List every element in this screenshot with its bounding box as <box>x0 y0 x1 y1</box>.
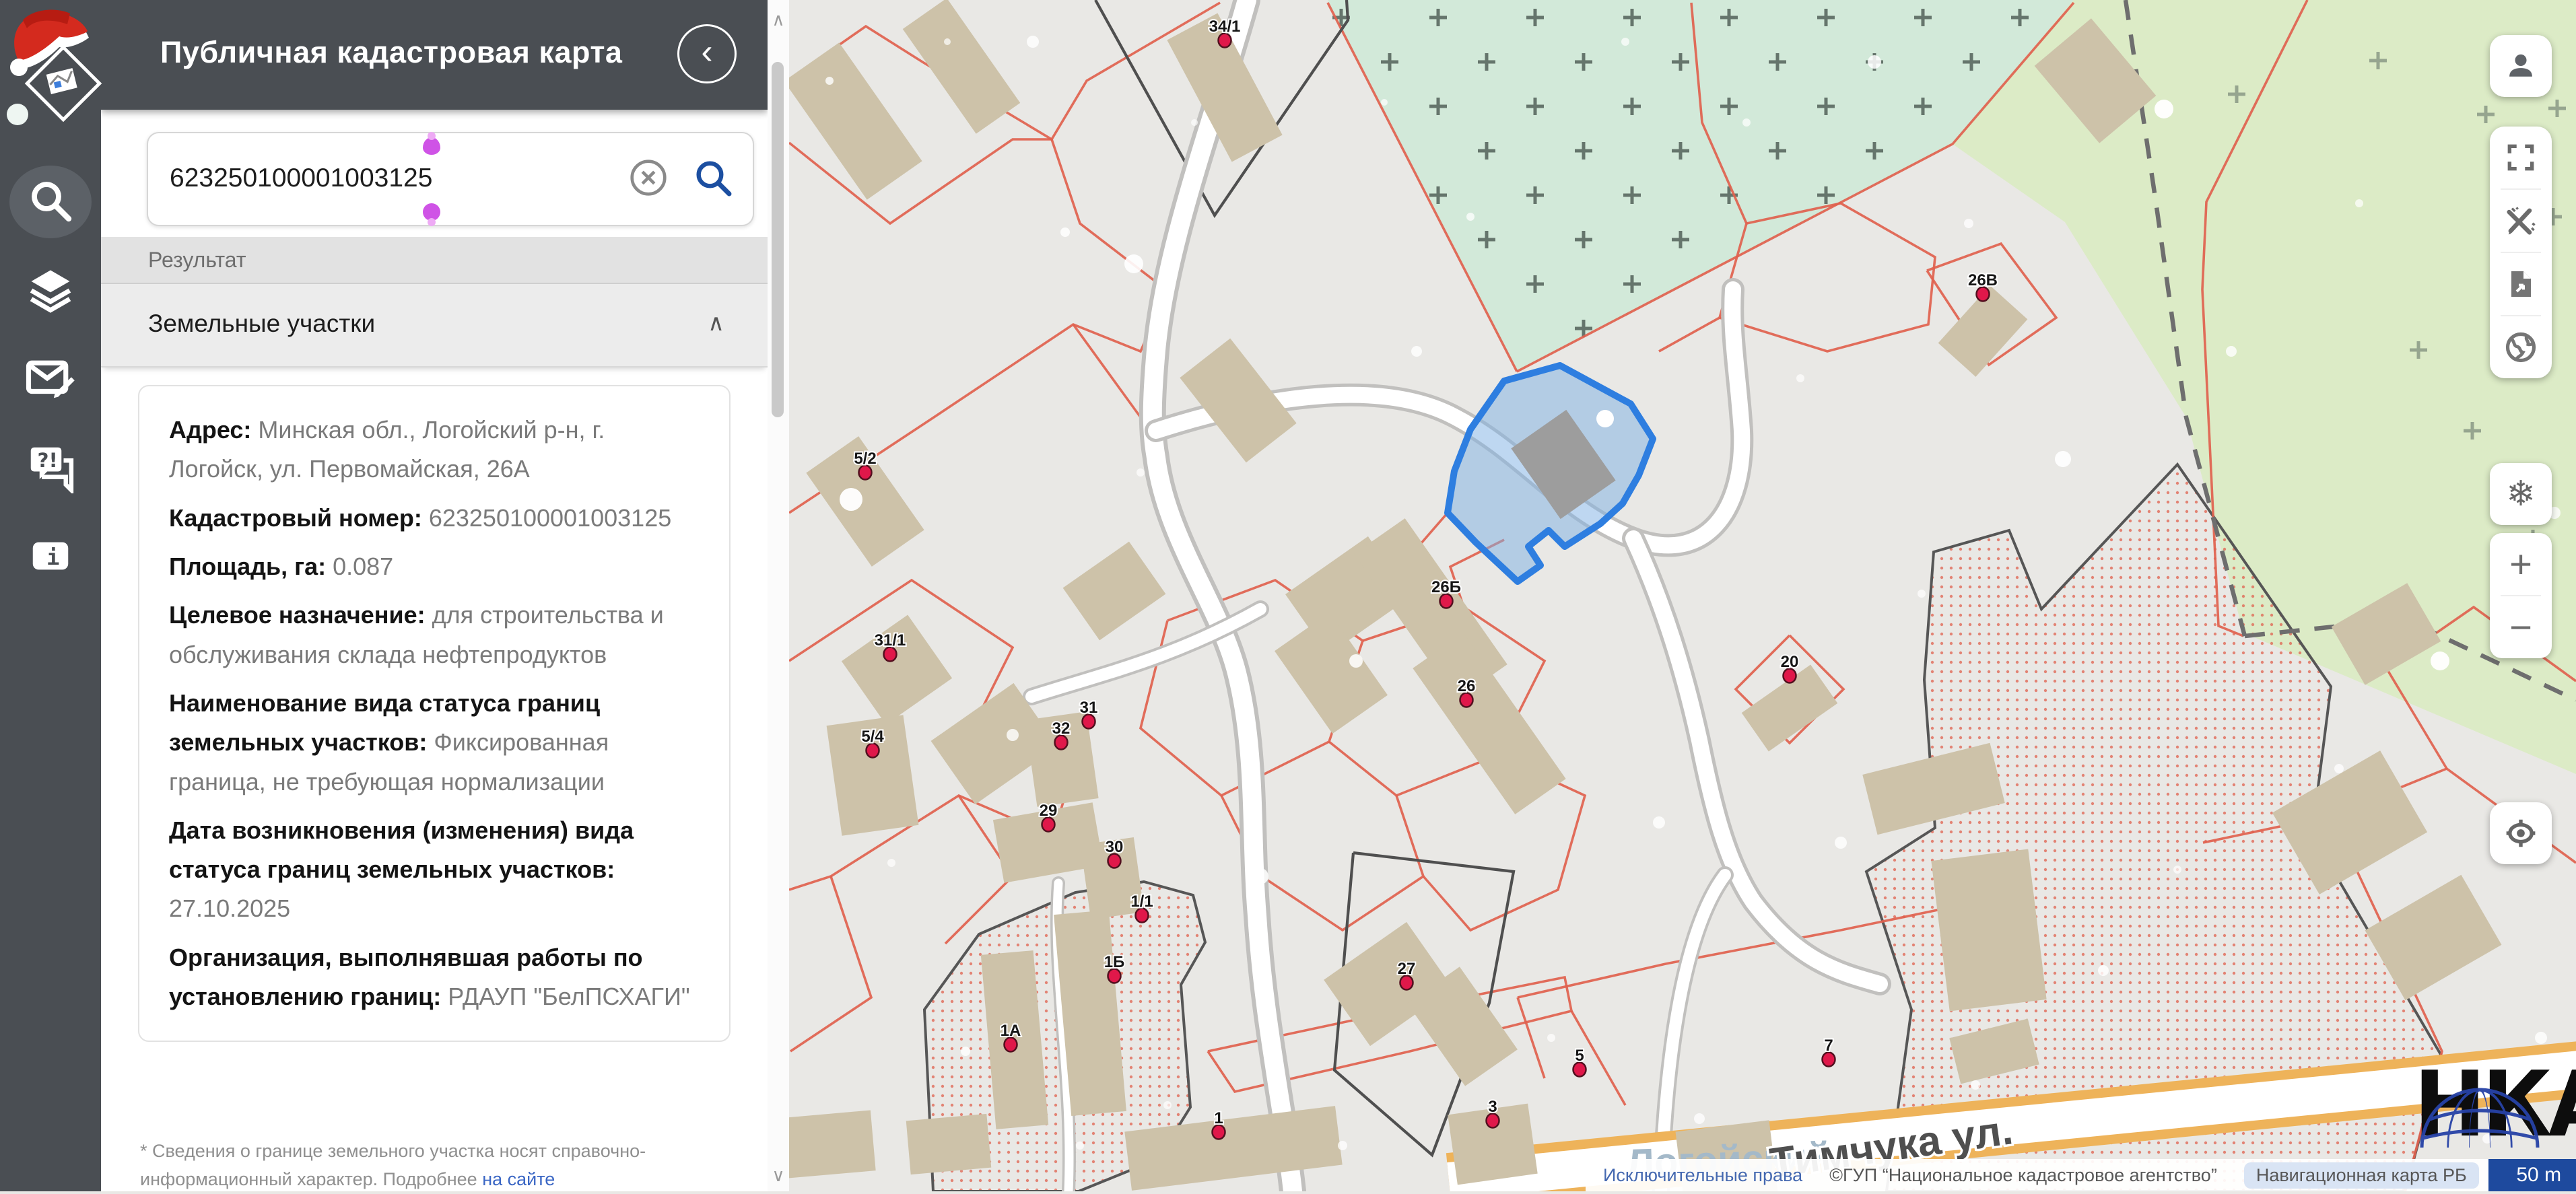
snow-dot <box>1466 213 1475 221</box>
clear-icon <box>628 157 669 202</box>
chevron-left-icon: ‹ <box>701 32 712 72</box>
snow-dot <box>2155 100 2173 118</box>
address-marker-label: 31 <box>1080 699 1098 717</box>
address-marker[interactable]: 32 <box>1052 719 1071 750</box>
snow-dot <box>2355 199 2363 207</box>
address-marker[interactable]: 30 <box>1106 838 1124 868</box>
search-field <box>147 132 754 226</box>
result-header: Результат ✕ <box>101 237 768 284</box>
text-selection-handle-top[interactable] <box>423 137 440 155</box>
address-marker[interactable]: 1 <box>1213 1109 1225 1139</box>
measure-button[interactable] <box>2490 190 2552 252</box>
address-marker-label: 1/1 <box>1130 892 1153 911</box>
locate-button[interactable] <box>2490 802 2552 864</box>
zoom-out-button[interactable]: − <box>2490 596 2552 658</box>
map-canvas[interactable]: 34/126В5/231/131325/429301/11Б1А26Б26271… <box>789 0 2576 1191</box>
scrollbar-thumb[interactable] <box>772 62 784 417</box>
section-land-parcels[interactable]: Земельные участки ∧ <box>101 284 768 367</box>
snow-dot <box>1076 1142 1084 1150</box>
snow-dot <box>1124 254 1143 273</box>
building <box>906 1114 992 1174</box>
detail-row: Дата возникновения (изменения) вида стат… <box>169 811 700 929</box>
snow-dot <box>887 859 895 867</box>
cadastral-map-app: ?! i Публичная к <box>0 0 2576 1191</box>
svg-text:?!: ?! <box>38 449 58 472</box>
address-marker-label: 26Б <box>1431 578 1461 596</box>
svg-text:i: i <box>46 544 59 569</box>
scale-indicator: 50 m <box>2488 1159 2576 1191</box>
scroll-up-icon[interactable]: ∧ <box>768 9 789 30</box>
building <box>1931 849 2046 1012</box>
agency-credit: ©ГУП “Национальное кадастровое агентство… <box>1829 1165 2217 1186</box>
app-logo[interactable] <box>3 1 124 136</box>
layers-icon <box>25 264 76 318</box>
snow-dot <box>2226 346 2237 357</box>
sidebar-item-layers[interactable] <box>0 250 101 331</box>
zoom-control: + − <box>2490 533 2552 658</box>
address-marker-label: 5/4 <box>861 728 884 746</box>
address-marker[interactable]: 20 <box>1781 653 1799 683</box>
snow-dot <box>2098 965 2109 976</box>
snow-toggle-button[interactable]: ❄ <box>2490 463 2552 525</box>
mail-edit-icon <box>24 352 77 408</box>
snow-dot <box>2173 866 2181 874</box>
sidebar-item-info[interactable]: i <box>0 517 101 598</box>
snow-dot <box>1163 1101 1172 1109</box>
snow-dot <box>1742 118 1751 127</box>
snow-dot <box>2535 1032 2547 1044</box>
footnote: * Сведения о границе земельного участка … <box>140 1137 733 1194</box>
user-icon <box>2490 35 2552 97</box>
snow-dot <box>1918 590 1926 598</box>
globe-button[interactable] <box>2490 316 2552 378</box>
address-marker[interactable]: 29 <box>1040 802 1058 832</box>
snow-dot <box>825 77 834 85</box>
snow-dot <box>1060 227 1070 237</box>
faq-icon: ?! <box>24 441 77 497</box>
detail-row: Площадь, га: 0.087 <box>169 547 700 586</box>
search-icon <box>26 176 75 228</box>
user-button[interactable] <box>2490 35 2552 97</box>
detail-row: Адрес: Минская обл., Логойский р-н, г. Л… <box>169 411 700 489</box>
address-marker[interactable]: 7 <box>1823 1037 1835 1067</box>
rights-link[interactable]: Исключительные права <box>1603 1165 1802 1186</box>
address-marker-label: 27 <box>1398 960 1416 978</box>
snow-dot <box>1191 119 1198 126</box>
file-export-icon <box>2505 268 2537 300</box>
snow-dot <box>944 38 951 45</box>
nca-logo: НКА <box>2410 1059 2561 1156</box>
address-marker[interactable]: 5 <box>1573 1047 1586 1077</box>
snow-dot <box>1338 1141 1347 1150</box>
snow-dot <box>1694 1113 1705 1124</box>
export-document-button[interactable] <box>2490 253 2552 315</box>
collapse-panel-button[interactable]: ‹ <box>677 24 737 83</box>
panel-scrollbar: ∧ ∨ <box>768 0 789 1191</box>
section-title: Земельные участки <box>148 310 375 338</box>
address-marker-label: 3 <box>1488 1098 1497 1116</box>
detail-row: Кадастровый номер: 623250100001003125 <box>169 499 700 538</box>
snow-dot <box>1796 374 1804 382</box>
sidebar-item-faq[interactable]: ?! <box>0 428 101 509</box>
snow-dot <box>1971 1080 1980 1090</box>
address-marker-label: 20 <box>1781 653 1799 671</box>
snow-dot <box>1835 837 1847 849</box>
address-marker-label: 1А <box>1001 1022 1021 1040</box>
snow-dot <box>1964 219 1973 228</box>
map-basemap: 34/126В5/231/131325/429301/11Б1А26Б26271… <box>789 0 2576 1191</box>
attribution-bar: Исключительные права ©ГУП “Национальное … <box>1586 1159 2576 1191</box>
address-marker-label: 1 <box>1214 1109 1223 1127</box>
snow-dot <box>1596 410 1614 427</box>
sidebar-item-feedback[interactable] <box>0 339 101 420</box>
map-tools-group <box>2490 127 2552 378</box>
snow-dot <box>1252 868 1268 884</box>
address-marker-label: 26В <box>1968 271 1998 289</box>
snow-dot <box>1653 816 1665 829</box>
search-panel: Публичная кадастровая карта ‹ Результат … <box>101 0 768 1191</box>
snow-dot <box>961 1047 970 1056</box>
measure-icon <box>2503 203 2538 238</box>
search-submit-button[interactable] <box>683 133 743 225</box>
detail-row: Наименование вида статуса границ земельн… <box>169 684 700 802</box>
snow-dot <box>1411 346 1422 357</box>
address-marker-label: 1Б <box>1104 953 1125 971</box>
search-icon <box>691 156 735 203</box>
page-title: Публичная кадастровая карта <box>160 35 622 70</box>
site-link[interactable]: на сайте <box>482 1169 555 1189</box>
address-marker-label: 30 <box>1106 838 1124 856</box>
snow-dot <box>1547 1034 1555 1042</box>
fullscreen-icon <box>2504 141 2538 174</box>
sidebar: ?! i <box>0 0 101 1191</box>
snow-dot <box>2431 652 2449 670</box>
snow-dot <box>2334 764 2344 773</box>
address-marker-label: 31/1 <box>875 631 906 649</box>
scroll-down-icon[interactable]: ∨ <box>768 1165 789 1186</box>
address-marker-label: 29 <box>1040 802 1058 820</box>
locate-icon <box>2490 802 2552 864</box>
info-icon: i <box>27 532 74 583</box>
address-marker[interactable]: 27 <box>1398 960 1416 990</box>
clear-search-button[interactable] <box>618 133 679 225</box>
detail-row: Организация, выполнявшая работы по устан… <box>169 938 700 1017</box>
building <box>789 1111 876 1179</box>
nav-map-credit: Навигационная карта РБ <box>2244 1162 2479 1189</box>
sidebar-item-search[interactable] <box>0 162 101 242</box>
panel-header: Публичная кадастровая карта ‹ <box>101 0 768 110</box>
address-marker[interactable]: 31 <box>1080 699 1098 729</box>
snow-dot <box>1621 38 1629 46</box>
address-marker-label: 26 <box>1458 677 1476 695</box>
fullscreen-button[interactable] <box>2490 127 2552 188</box>
address-marker[interactable]: 26 <box>1458 677 1476 707</box>
snow-dot <box>840 488 862 511</box>
text-selection-handle-bottom[interactable] <box>423 203 440 221</box>
detail-row: Целевое назначение: для строительства и … <box>169 596 700 674</box>
result-title: Результат <box>148 248 246 273</box>
zoom-in-button[interactable]: + <box>2490 533 2552 595</box>
snow-dot <box>1868 55 1881 69</box>
address-marker[interactable]: 3 <box>1487 1098 1499 1128</box>
snow-dot <box>1137 468 1145 477</box>
search-input[interactable] <box>168 139 602 218</box>
address-marker-label: 7 <box>1824 1037 1833 1055</box>
snow-dot <box>1007 729 1019 741</box>
address-marker-label: 5/2 <box>854 450 876 468</box>
address-marker-label: 5 <box>1575 1047 1584 1065</box>
snowflake-icon: ❄ <box>2506 474 2536 514</box>
parcel-details-card: Адрес: Минская обл., Логойский р-н, г. Л… <box>138 385 731 1042</box>
snow-dot <box>1381 99 1388 106</box>
address-marker-label: 34/1 <box>1209 17 1241 36</box>
chevron-up-icon[interactable]: ∧ <box>708 310 724 337</box>
snow-dot <box>1027 36 1039 48</box>
snow-dot <box>2055 451 2071 467</box>
address-marker-label: 32 <box>1052 719 1071 738</box>
globe-icon <box>2503 330 2538 365</box>
snow-dot <box>1349 654 1363 668</box>
